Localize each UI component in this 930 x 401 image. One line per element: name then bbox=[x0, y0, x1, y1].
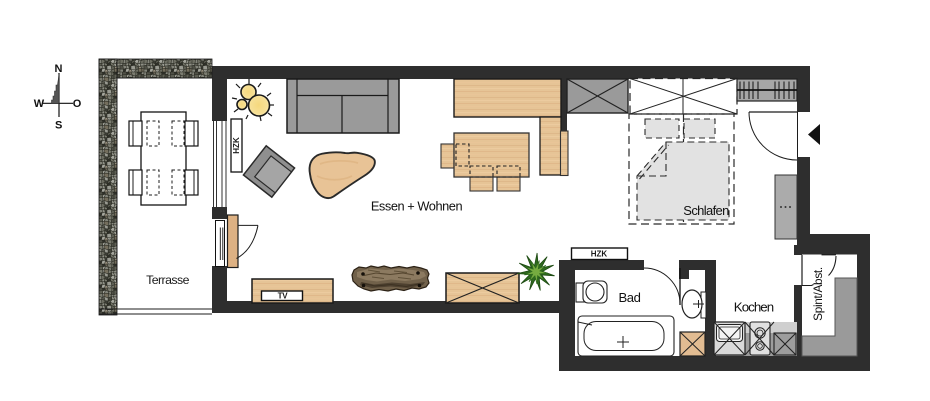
svg-text:HZK: HZK bbox=[232, 137, 241, 154]
svg-text:HZK: HZK bbox=[591, 250, 608, 259]
svg-text:Kochen: Kochen bbox=[734, 300, 774, 315]
svg-text:W: W bbox=[34, 98, 45, 110]
svg-text:Essen + Wohnen: Essen + Wohnen bbox=[371, 199, 463, 214]
svg-text:Spint/Abst.: Spint/Abst. bbox=[811, 267, 825, 321]
svg-text:S: S bbox=[55, 120, 62, 132]
svg-text:O: O bbox=[73, 98, 82, 110]
svg-text:N: N bbox=[55, 63, 63, 75]
svg-text:Terrasse: Terrasse bbox=[146, 273, 189, 287]
svg-text:TV: TV bbox=[278, 292, 289, 301]
svg-text:Schlafen: Schlafen bbox=[683, 203, 729, 218]
svg-text:Bad: Bad bbox=[619, 290, 641, 305]
